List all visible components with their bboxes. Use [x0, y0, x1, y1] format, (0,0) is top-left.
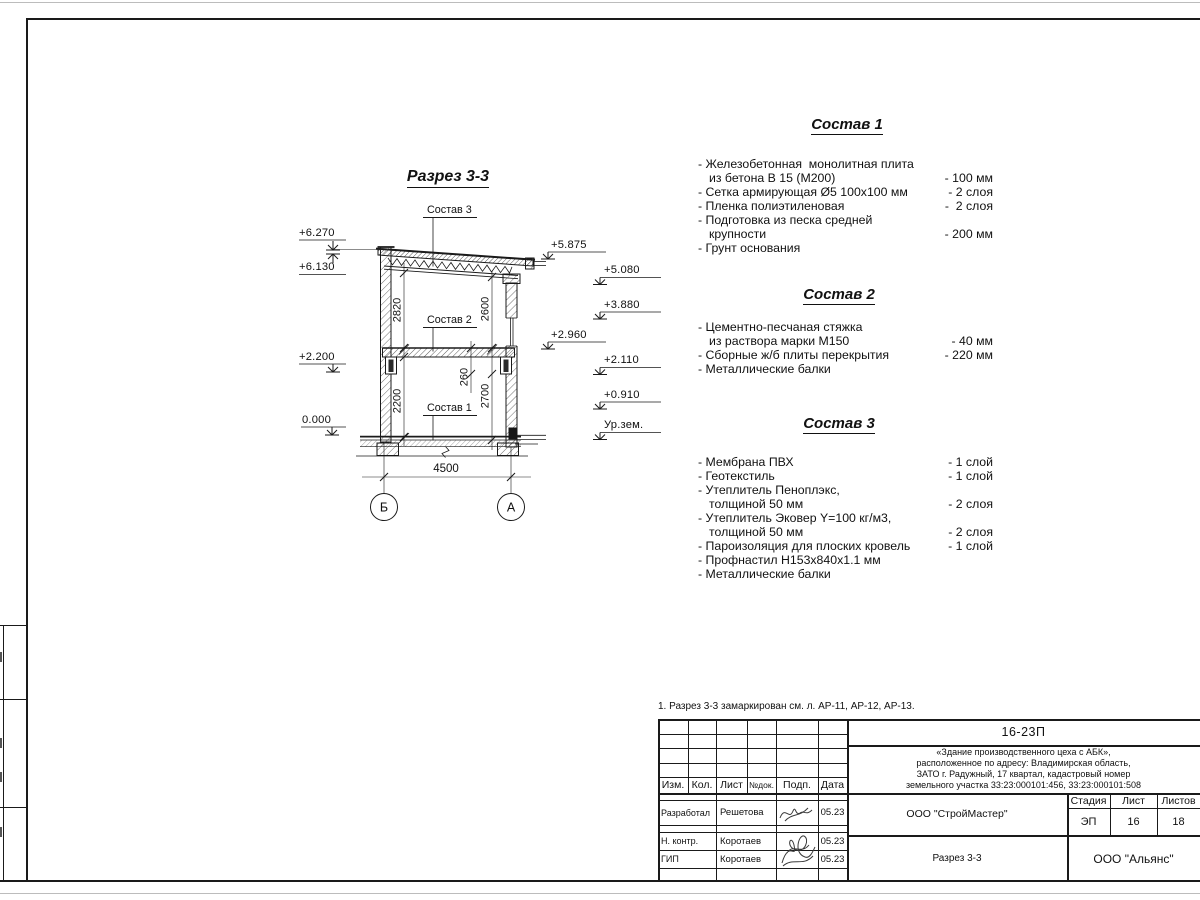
- role-date: 05.23: [818, 800, 847, 825]
- margin-strip-line: [0, 625, 27, 626]
- spec-row: - Пароизоляция для плоских кровель- 1 сл…: [698, 540, 993, 554]
- rev-header-izm: Изм.: [658, 777, 688, 793]
- sheets-total: 18: [1157, 808, 1200, 835]
- level-label: +3.880: [604, 299, 640, 311]
- spec-row: - Подготовка из песка средней: [698, 214, 993, 228]
- margin-strip-text-fragment: [0, 738, 2, 748]
- spec-row: крупности- 200 мм: [698, 228, 993, 242]
- sheet-bottom-edge: [0, 893, 1200, 894]
- level-label: +6.270: [299, 227, 335, 239]
- sheet-label: Лист: [1110, 793, 1157, 808]
- margin-strip-line: [0, 807, 27, 808]
- rev-header-kol: Кол.: [688, 777, 716, 793]
- spec-row: - Сетка армирующая Ø5 100х100 мм- 2 слоя: [698, 186, 993, 200]
- spec-row: - Сборные ж/б плиты перекрытия- 220 мм: [698, 349, 993, 363]
- spec-row: толщиной 50 мм- 2 слоя: [698, 526, 993, 540]
- axis-letter-left: Б: [380, 501, 388, 515]
- axis-circles: [371, 494, 525, 521]
- title-block: Изм. Кол. Лист №док. Подп. Дата Разработ…: [658, 719, 1200, 882]
- margin-strip-text-fragment: [0, 652, 2, 662]
- level-label: +6.130: [299, 261, 335, 273]
- dim-4500: 4500: [433, 463, 459, 475]
- drawing-sheet: Разрез 3-3: [0, 0, 1200, 900]
- callout-sostav2: Состав 2: [423, 314, 477, 328]
- project-description: «Здание производственного цеха с АБК», р…: [847, 745, 1200, 793]
- level-label: 0.000: [302, 414, 331, 426]
- level-label: +2.110: [604, 354, 639, 366]
- spec-title-3: Состав 3: [694, 415, 984, 432]
- role-label: Разработал: [658, 800, 719, 825]
- spec-row: - Металлические балки: [698, 363, 993, 377]
- spec-row: из бетона В 15 (М200)- 100 мм: [698, 172, 993, 186]
- rev-header-ndok: №док.: [747, 777, 776, 793]
- sheet-number: 16: [1110, 808, 1157, 835]
- callout-sostav1: Состав 1: [423, 402, 477, 416]
- level-label: +2.200: [299, 351, 335, 363]
- role-label: Н. контр.: [658, 832, 719, 850]
- spec-row: - Пленка полиэтиленовая- 2 слоя: [698, 200, 993, 214]
- dim-2820: 2820: [392, 298, 404, 322]
- spec-title-2: Состав 2: [694, 286, 984, 303]
- spec-row: из раствора марки М150- 40 мм: [698, 335, 993, 349]
- sheets-label: Листов: [1157, 793, 1200, 808]
- spec-row: - Цементно-песчаная стяжка: [698, 321, 993, 335]
- level-label: +5.080: [604, 264, 640, 276]
- signature: [777, 829, 817, 869]
- signature: [778, 803, 816, 825]
- window: [505, 318, 519, 346]
- role-date: 05.23: [818, 850, 847, 868]
- level-label: +5.875: [551, 239, 587, 251]
- role-label: ГИП: [658, 850, 719, 868]
- dim-2700: 2700: [480, 384, 492, 408]
- stage-value: ЭП: [1067, 808, 1110, 835]
- sheet-note: 1. Разрез 3-3 замаркирован см. л. АР-11,…: [658, 701, 915, 712]
- role-name: Коротаев: [717, 850, 778, 868]
- margin-strip-text-fragment: [0, 772, 2, 782]
- dim-2600: 2600: [480, 297, 492, 321]
- spec-row: - Металлические балки: [698, 568, 993, 582]
- role-date: 05.23: [818, 832, 847, 850]
- spec-row: - Утеплитель Пеноплэкс,: [698, 484, 993, 498]
- spec-list-3: - Мембрана ПВХ- 1 слой - Геотекстиль- 1 …: [698, 456, 993, 582]
- project-line: расположенное по адресу: Владимирская об…: [847, 758, 1200, 769]
- dim-260: 260: [459, 368, 471, 386]
- callout-sostav3: Состав 3: [423, 204, 477, 218]
- margin-strip-line: [3, 625, 4, 880]
- spec-row: - Грунт основания: [698, 242, 993, 256]
- contractor: ООО "СтройМастер": [847, 793, 1067, 835]
- frame-left: [26, 18, 28, 882]
- level-label: +2.960: [551, 329, 587, 341]
- client: ООО "Альянс": [1067, 835, 1200, 882]
- spec-list-1: - Железобетонная монолитная плита из бет…: [698, 158, 993, 256]
- margin-strip-text-fragment: [0, 827, 2, 837]
- sheet-title-cell: Разрез 3-3: [847, 835, 1067, 882]
- project-line: «Здание производственного цеха с АБК»,: [847, 747, 1200, 758]
- spec-row: - Профнастил Н153х840х1.1 мм: [698, 554, 993, 568]
- spec-row: - Утеплитель Эковер Y=100 кг/м3,: [698, 512, 993, 526]
- sheet-top-edge: [0, 2, 1200, 3]
- project-line: земельного участка 33:23:000101:456, 33:…: [847, 780, 1200, 791]
- role-name: Решетова: [717, 800, 778, 825]
- spec-row: - Геотекстиль- 1 слой: [698, 470, 993, 484]
- level-label: Ур.зем.: [604, 419, 643, 431]
- role-name: Коротаев: [717, 832, 778, 850]
- margin-strip-line: [0, 699, 27, 700]
- spec-title-1: Состав 1: [702, 116, 992, 133]
- rev-header-data: Дата: [818, 777, 847, 793]
- dim-2200: 2200: [392, 389, 404, 413]
- rev-header-list: Лист: [716, 777, 747, 793]
- frame-top: [26, 18, 1200, 20]
- doc-code: 16-23П: [847, 719, 1200, 745]
- spec-row: толщиной 50 мм- 2 слоя: [698, 498, 993, 512]
- level-label: +0.910: [604, 389, 640, 401]
- axis-letter-right: А: [507, 501, 516, 515]
- project-line: ЗАТО г. Радужный, 17 квартал, кадастровы…: [847, 769, 1200, 780]
- spec-list-2: - Цементно-песчаная стяжка из раствора м…: [698, 321, 993, 377]
- spec-row: - Мембрана ПВХ- 1 слой: [698, 456, 993, 470]
- stage-label: Стадия: [1067, 793, 1110, 808]
- rev-header-podp: Подп.: [776, 777, 818, 793]
- spec-row: - Железобетонная монолитная плита: [698, 158, 993, 172]
